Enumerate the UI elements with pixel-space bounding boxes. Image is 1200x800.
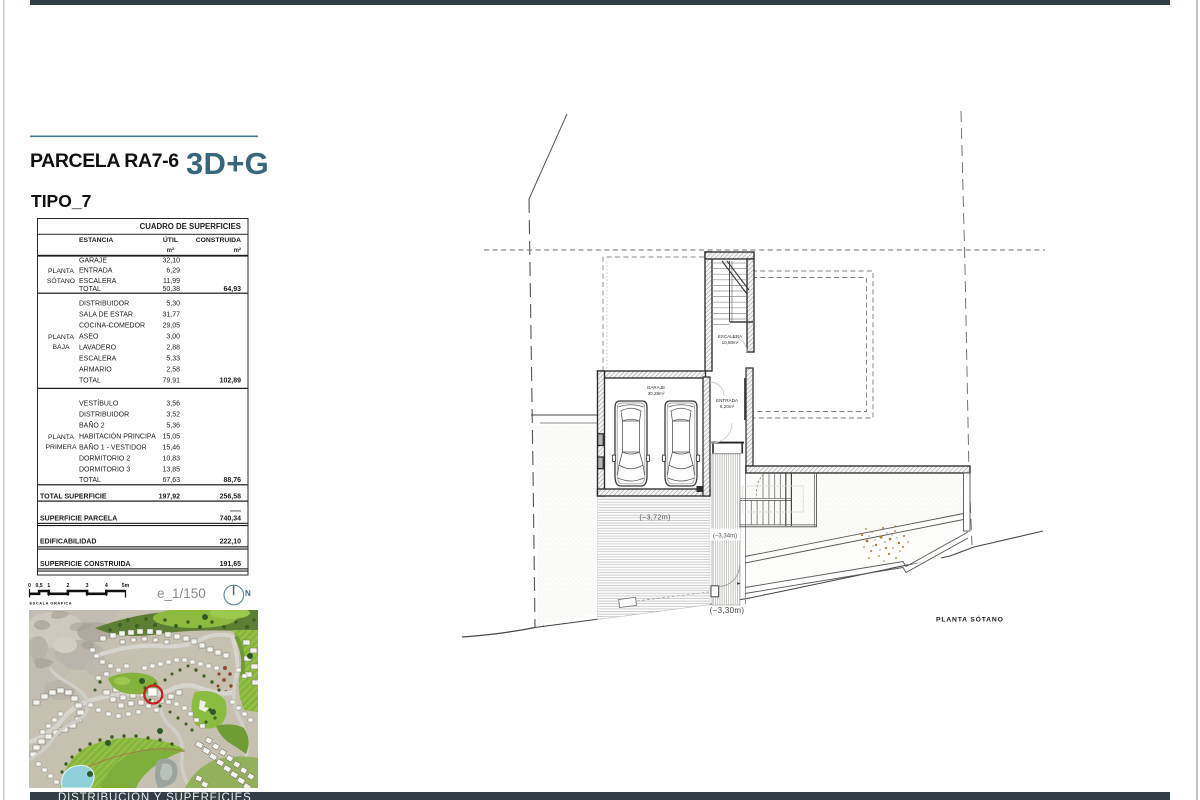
svg-text:ENTRADA: ENTRADA bbox=[716, 398, 739, 403]
svg-text:ESCALERA: ESCALERA bbox=[718, 334, 743, 339]
svg-text:DORMITORIO 2: DORMITORIO 2 bbox=[79, 456, 130, 463]
svg-text:ÚTIL: ÚTIL bbox=[163, 235, 178, 244]
svg-text:5,36: 5,36 bbox=[166, 423, 180, 430]
svg-text:DORMITORIO 3: DORMITORIO 3 bbox=[79, 467, 130, 474]
svg-text:1: 1 bbox=[47, 583, 50, 589]
svg-text:102,89: 102,89 bbox=[220, 378, 242, 385]
svg-text:2,88: 2,88 bbox=[166, 345, 180, 352]
svg-text:m²: m² bbox=[234, 247, 241, 254]
svg-text:SÓTANO: SÓTANO bbox=[47, 276, 75, 285]
svg-text:(−3,72m): (−3,72m) bbox=[639, 513, 670, 522]
svg-text:BAÑO 2: BAÑO 2 bbox=[79, 421, 105, 430]
svg-text:3,56: 3,56 bbox=[166, 401, 180, 408]
svg-text:ESCALA GRÁFICA: ESCALA GRÁFICA bbox=[30, 601, 73, 606]
svg-text:6,20m²: 6,20m² bbox=[720, 404, 735, 409]
svg-text:PLANTA: PLANTA bbox=[48, 268, 74, 275]
svg-text:256,58: 256,58 bbox=[220, 494, 242, 501]
svg-text:67,63: 67,63 bbox=[162, 477, 180, 484]
svg-text:88,76: 88,76 bbox=[223, 477, 241, 484]
svg-text:e_1/150: e_1/150 bbox=[157, 586, 206, 601]
svg-text:HABITACIÓN PRINCIPA: HABITACIÓN PRINCIPA bbox=[79, 432, 156, 441]
svg-text:3: 3 bbox=[86, 583, 89, 589]
svg-text:2,58: 2,58 bbox=[166, 367, 180, 374]
svg-text:11,99: 11,99 bbox=[163, 278, 180, 285]
svg-text:222,10: 222,10 bbox=[220, 539, 242, 546]
svg-text:15,46: 15,46 bbox=[162, 445, 180, 452]
svg-text:0,5: 0,5 bbox=[35, 583, 42, 589]
svg-text:EDIFICABILIDAD: EDIFICABILIDAD bbox=[40, 539, 96, 546]
svg-text:(−3,34m): (−3,34m) bbox=[713, 534, 737, 540]
svg-text:TIPO_7: TIPO_7 bbox=[31, 191, 91, 211]
svg-text:ENTRADA: ENTRADA bbox=[79, 268, 113, 275]
svg-text:TOTAL: TOTAL bbox=[79, 286, 101, 293]
svg-text:N: N bbox=[245, 589, 251, 598]
svg-text:CONSTRUIDA: CONSTRUIDA bbox=[196, 237, 241, 244]
svg-text:PARCELA RA7-6: PARCELA RA7-6 bbox=[30, 150, 179, 172]
svg-text:197,92: 197,92 bbox=[159, 494, 181, 501]
svg-text:DISTRIBUCIÓN Y SUPERFICIES: DISTRIBUCIÓN Y SUPERFICIES bbox=[58, 791, 252, 800]
svg-text:15,05: 15,05 bbox=[162, 434, 180, 441]
svg-text:ESTANCIA: ESTANCIA bbox=[79, 237, 113, 244]
svg-text:BAJA: BAJA bbox=[53, 344, 70, 351]
svg-text:5,30: 5,30 bbox=[166, 301, 180, 308]
svg-text:ESCALERA: ESCALERA bbox=[79, 356, 117, 363]
svg-text:ESCALERA: ESCALERA bbox=[79, 278, 117, 285]
svg-text:GARAJE: GARAJE bbox=[647, 385, 665, 390]
svg-text:740,34: 740,34 bbox=[220, 516, 242, 523]
svg-text:5,33: 5,33 bbox=[166, 356, 180, 363]
svg-text:PLANTA SÓTANO: PLANTA SÓTANO bbox=[936, 615, 1004, 624]
svg-text:6,29: 6,29 bbox=[166, 268, 180, 275]
svg-text:32,10: 32,10 bbox=[162, 258, 180, 265]
svg-text:TOTAL SUPERFICIE: TOTAL SUPERFICIE bbox=[40, 494, 107, 501]
svg-text:TOTAL: TOTAL bbox=[79, 477, 101, 484]
svg-text:3,52: 3,52 bbox=[166, 412, 180, 419]
svg-text:29,05: 29,05 bbox=[162, 323, 180, 330]
svg-text:10,83: 10,83 bbox=[162, 456, 180, 463]
svg-text:PLANTA: PLANTA bbox=[48, 334, 74, 341]
svg-text:4: 4 bbox=[105, 583, 108, 589]
svg-text:BAÑO 1 - VESTIDOR: BAÑO 1 - VESTIDOR bbox=[79, 443, 147, 452]
svg-text:3D+G: 3D+G bbox=[186, 146, 269, 181]
svg-text:5m: 5m bbox=[122, 583, 130, 589]
svg-text:191,65: 191,65 bbox=[220, 561, 242, 568]
svg-text:SUPERFICIE CONSTRUIDA: SUPERFICIE CONSTRUIDA bbox=[40, 561, 131, 568]
svg-text:COCINA-COMEDOR: COCINA-COMEDOR bbox=[79, 323, 145, 330]
svg-text:79,91: 79,91 bbox=[162, 378, 180, 385]
svg-text:DISTRIBUIDOR: DISTRIBUIDOR bbox=[79, 301, 129, 308]
svg-text:0: 0 bbox=[28, 583, 31, 589]
svg-text:CUADRO DE SUPERFICIES: CUADRO DE SUPERFICIES bbox=[140, 222, 241, 231]
svg-text:30,28m²: 30,28m² bbox=[648, 391, 665, 396]
svg-text:(−3,30m): (−3,30m) bbox=[710, 606, 745, 615]
svg-text:50,38: 50,38 bbox=[162, 286, 180, 293]
svg-text:ARMARIO: ARMARIO bbox=[79, 367, 112, 374]
svg-text:PRIMERA: PRIMERA bbox=[46, 444, 77, 451]
svg-text:TOTAL: TOTAL bbox=[79, 378, 101, 385]
svg-text:64,93: 64,93 bbox=[223, 286, 241, 293]
svg-text:DISTRIBUIDOR: DISTRIBUIDOR bbox=[79, 412, 129, 419]
svg-text:13,85: 13,85 bbox=[162, 467, 180, 474]
svg-text:SUPERFICIE PARCELA: SUPERFICIE PARCELA bbox=[40, 516, 117, 523]
svg-text:LAVADERO: LAVADERO bbox=[79, 345, 117, 352]
svg-text:31,77: 31,77 bbox=[162, 312, 180, 319]
svg-text:m²: m² bbox=[167, 247, 174, 254]
svg-text:SALA DE ESTAR: SALA DE ESTAR bbox=[79, 312, 133, 319]
svg-text:2: 2 bbox=[66, 583, 69, 589]
svg-text:3,00: 3,00 bbox=[166, 334, 180, 341]
svg-text:VESTÍBULO: VESTÍBULO bbox=[79, 399, 119, 408]
svg-text:PLANTA: PLANTA bbox=[48, 434, 74, 441]
svg-text:ASEO: ASEO bbox=[79, 334, 99, 341]
svg-text:10,80m²: 10,80m² bbox=[722, 340, 739, 345]
svg-text:GARAJE: GARAJE bbox=[79, 258, 107, 265]
